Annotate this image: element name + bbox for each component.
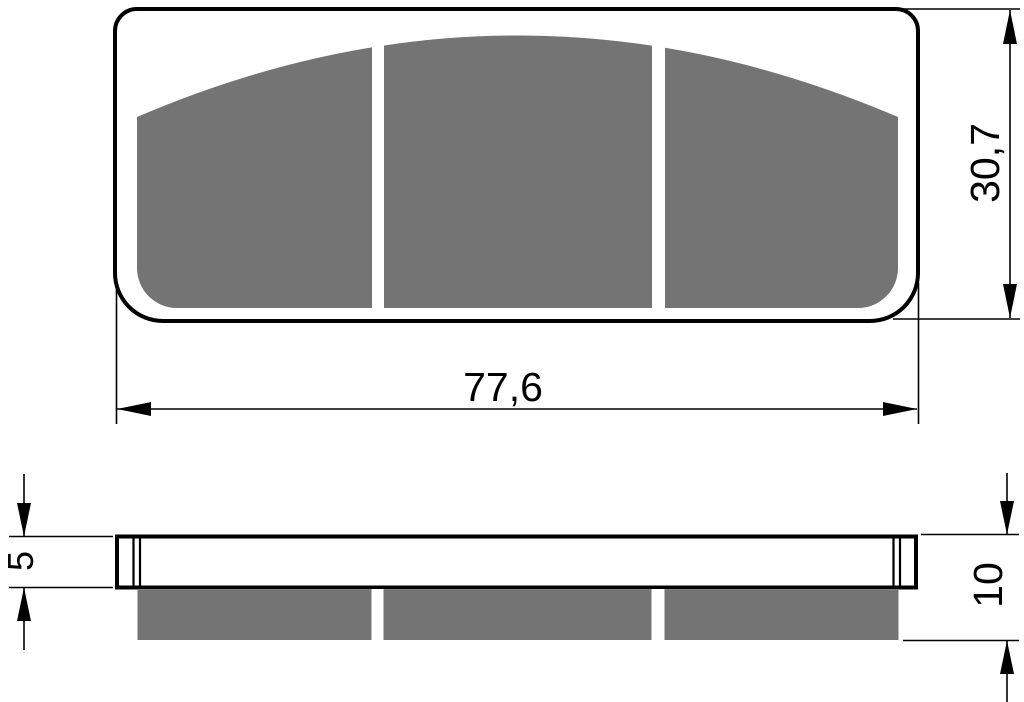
arrowhead-right — [883, 402, 917, 416]
friction-material-side — [138, 590, 899, 640]
arrowhead-bottom — [1003, 284, 1017, 318]
friction-groove-left — [372, 26, 384, 316]
technical-drawing-canvas: 77,6 30,7 5 — [0, 0, 1024, 702]
top-view — [115, 9, 918, 321]
arrowhead-down — [1000, 501, 1014, 535]
backplate-side-outline — [117, 537, 916, 588]
dimension-backplate-thickness: 5 — [0, 474, 113, 650]
arrowhead-top — [1003, 10, 1017, 44]
arrowhead-down — [17, 503, 31, 537]
dimension-height-label: 30,7 — [962, 123, 1008, 203]
friction-groove-side-right — [652, 589, 665, 641]
friction-material — [137, 36, 898, 309]
friction-groove-side-left — [372, 589, 384, 641]
side-view — [117, 537, 916, 642]
dimension-width-label: 77,6 — [463, 364, 543, 410]
dimension-backplate-thickness-label: 5 — [0, 551, 41, 571]
arrowhead-up — [1000, 641, 1014, 675]
arrowhead-up — [17, 588, 31, 622]
arrowhead-left — [117, 402, 151, 416]
dimension-overall-thickness: 10 — [903, 473, 1019, 702]
dimension-overall-thickness-label: 10 — [965, 562, 1011, 608]
friction-groove-right — [652, 26, 665, 316]
